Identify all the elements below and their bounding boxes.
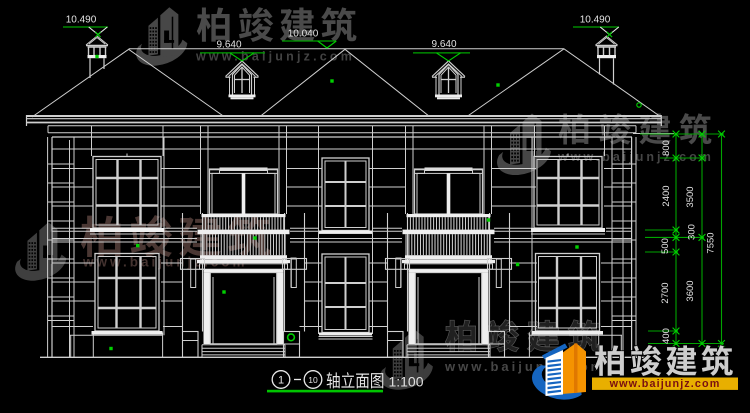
svg-text:2700: 2700 (660, 282, 671, 303)
svg-text:10.490: 10.490 (66, 15, 97, 26)
svg-text:www.baijunjz.com: www.baijunjz.com (609, 378, 721, 390)
svg-text:10: 10 (308, 375, 318, 385)
svg-text:300: 300 (687, 224, 698, 240)
svg-text:3500: 3500 (685, 186, 696, 207)
svg-text:10.490: 10.490 (580, 15, 611, 26)
svg-text:800: 800 (661, 140, 672, 156)
svg-text:9.640: 9.640 (431, 39, 456, 50)
svg-text:3600: 3600 (685, 280, 696, 301)
svg-text:www.baijunjz.com: www.baijunjz.com (195, 50, 355, 64)
svg-text:400: 400 (661, 328, 672, 344)
svg-text:1: 1 (278, 375, 284, 387)
svg-text:500: 500 (660, 238, 671, 254)
svg-text:9.640: 9.640 (216, 40, 241, 51)
svg-text:7550: 7550 (706, 232, 717, 253)
svg-text:10.040: 10.040 (288, 29, 319, 40)
svg-text:2400: 2400 (661, 185, 672, 206)
svg-text:1:100: 1:100 (388, 374, 423, 390)
